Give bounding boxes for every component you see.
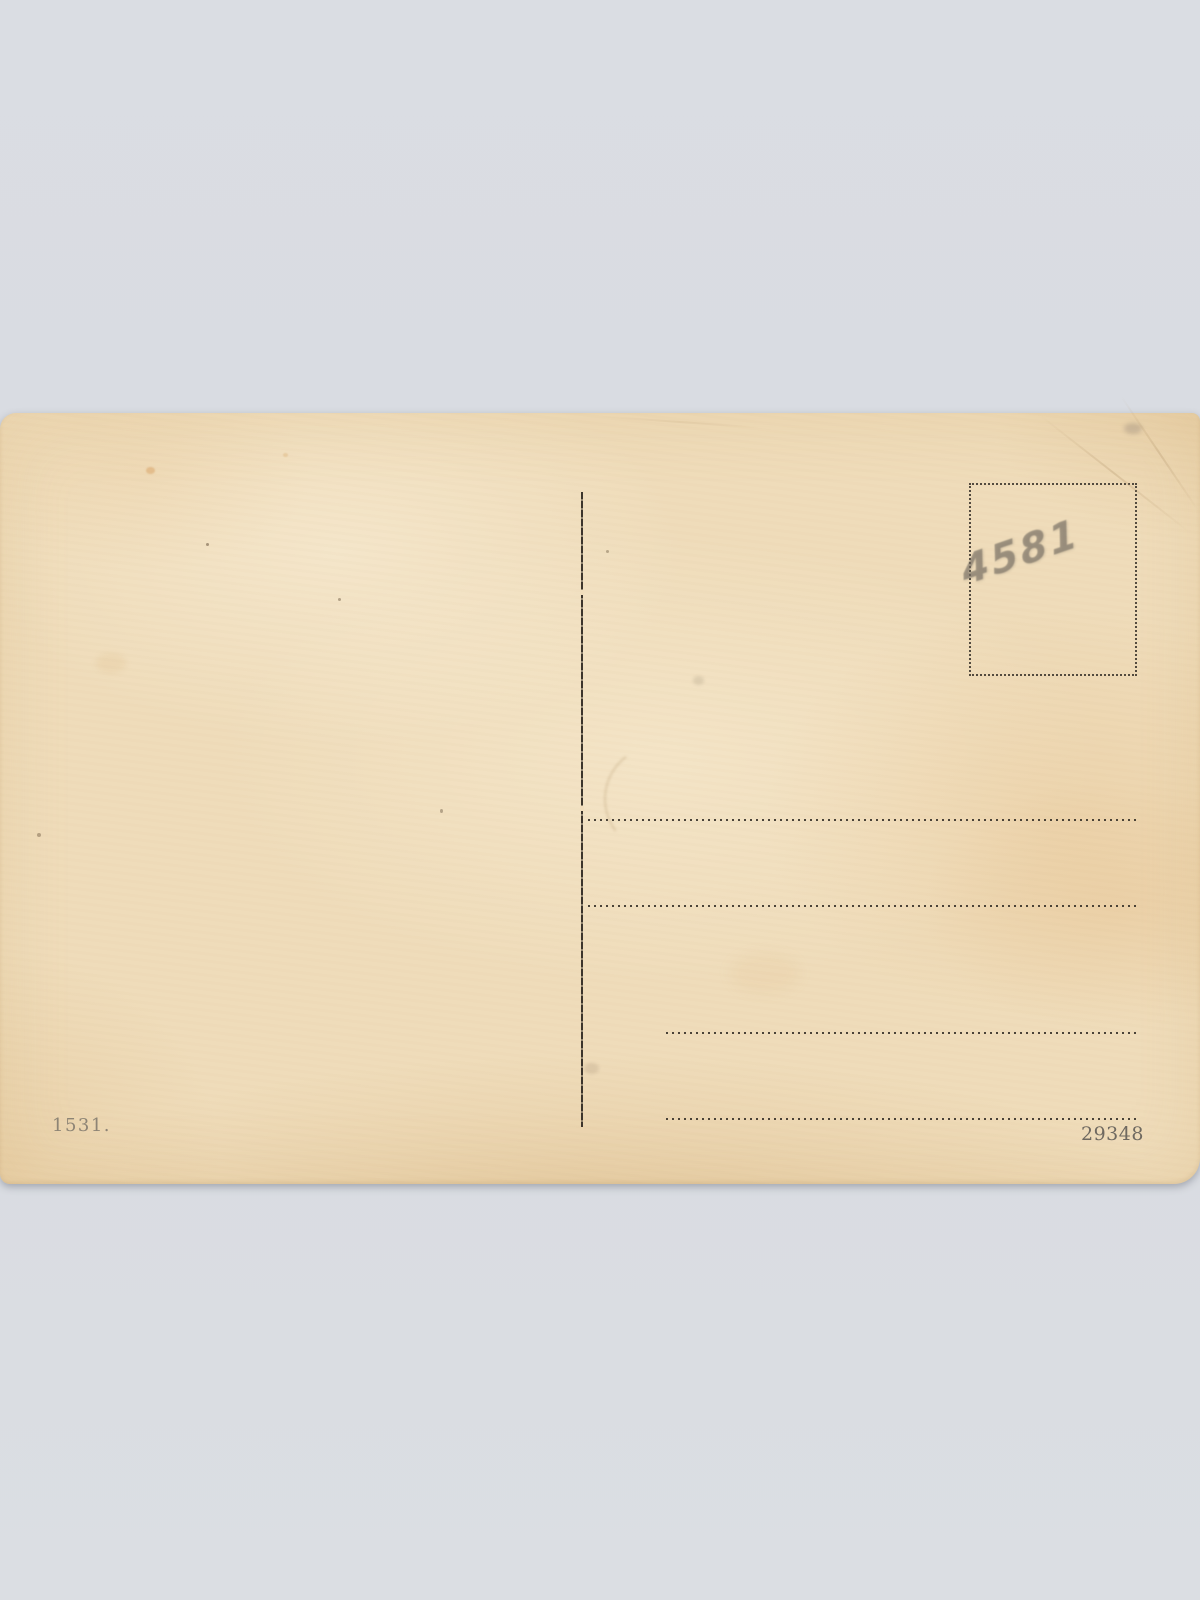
stain-spot [606,550,609,553]
stain-spot [1124,423,1142,434]
round-imprint-mark [597,738,719,860]
printed-number-right: 29348 [1081,1123,1144,1145]
scan-background: 4581 1531. 29348 [0,0,1200,1600]
stain-spot [693,676,704,685]
stain-spot [584,1063,599,1074]
stain-spot [440,809,443,813]
postcard: 4581 1531. 29348 [0,413,1200,1184]
stain-spot [96,653,126,673]
address-line-3 [666,1032,1138,1034]
stain-spot [37,833,41,837]
address-line-2 [588,905,1138,907]
printed-number-left: 1531. [52,1115,111,1136]
stain-spot [146,467,155,474]
stain-spot [338,598,341,601]
stain-spot [283,453,288,457]
divider-line [581,492,583,1127]
stain-spot [206,543,209,546]
stain-spot [730,953,800,993]
address-line-4 [666,1118,1138,1120]
divider-line-gap [580,806,584,811]
paper-crease [600,415,760,428]
divider-line-gap [580,590,584,595]
